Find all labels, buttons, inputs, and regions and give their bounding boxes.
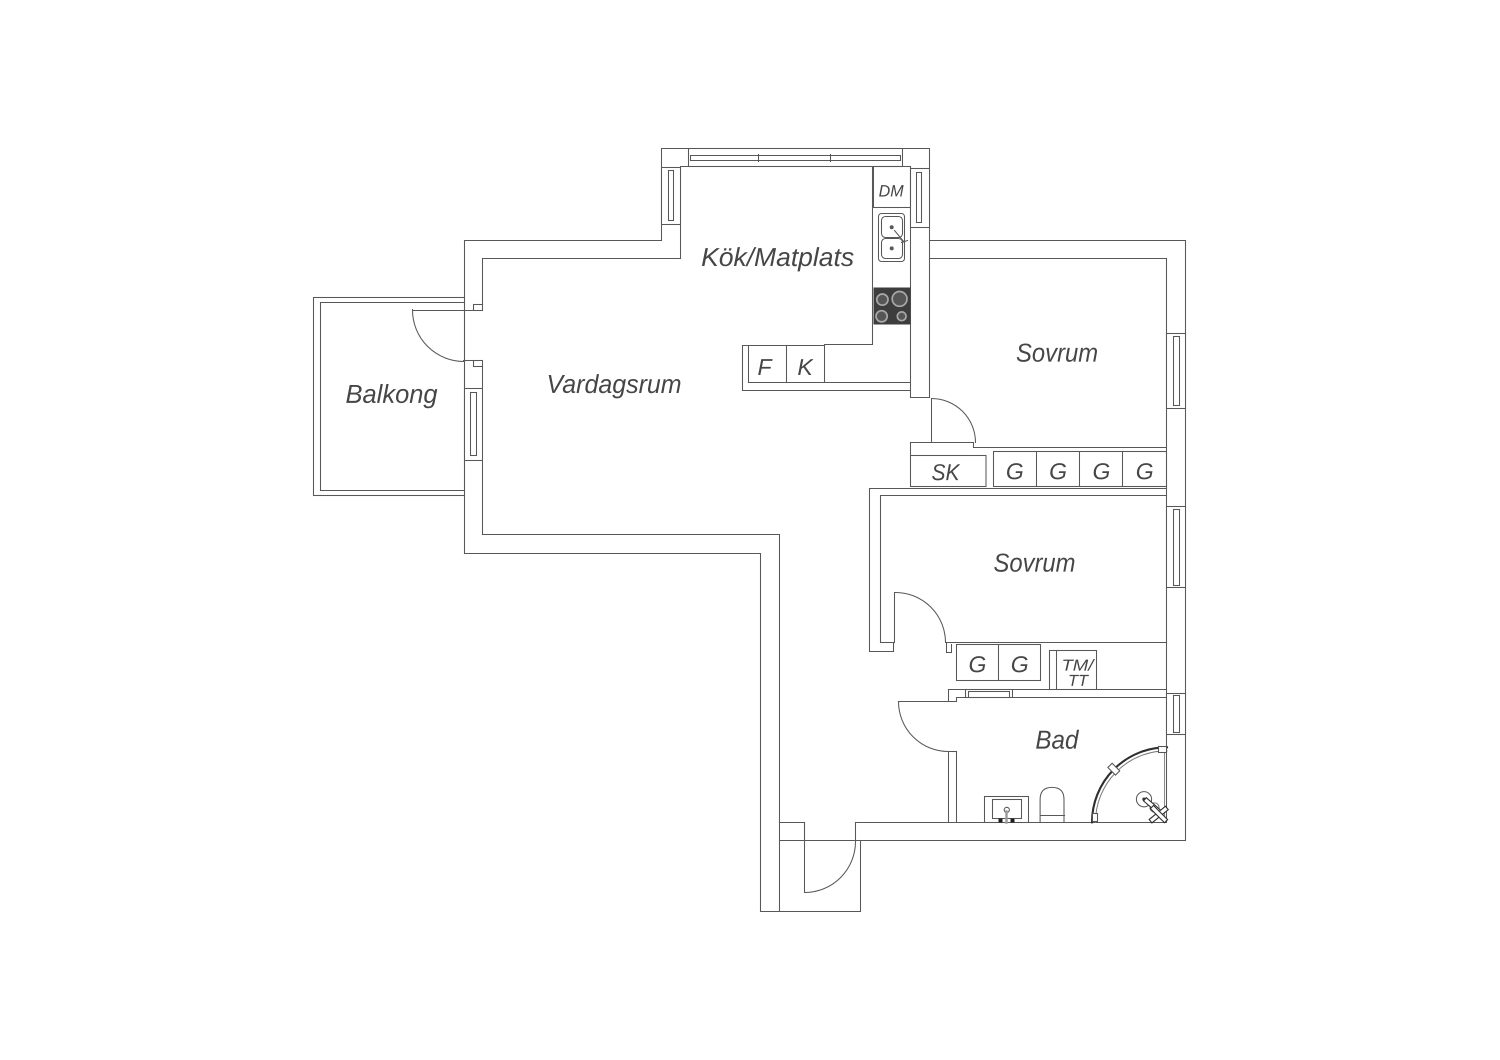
svg-text:G: G <box>1136 458 1154 484</box>
svg-text:G: G <box>1049 458 1067 484</box>
svg-text:Bad: Bad <box>1035 725 1079 755</box>
svg-text:G: G <box>1006 458 1024 484</box>
svg-text:SK: SK <box>932 459 962 485</box>
svg-text:K: K <box>797 354 814 380</box>
svg-text:F: F <box>758 354 774 380</box>
svg-text:Sovrum: Sovrum <box>1016 338 1098 368</box>
svg-text:TT: TT <box>1068 673 1089 690</box>
svg-text:G: G <box>1011 651 1029 677</box>
svg-text:DM: DM <box>879 183 904 201</box>
svg-text:Sovrum: Sovrum <box>993 548 1075 578</box>
svg-text:G: G <box>1092 458 1110 484</box>
svg-text:G: G <box>969 651 987 677</box>
svg-text:Kök/Matplats: Kök/Matplats <box>701 242 854 272</box>
svg-text:Balkong: Balkong <box>346 379 439 409</box>
svg-text:Vardagsrum: Vardagsrum <box>547 369 682 399</box>
